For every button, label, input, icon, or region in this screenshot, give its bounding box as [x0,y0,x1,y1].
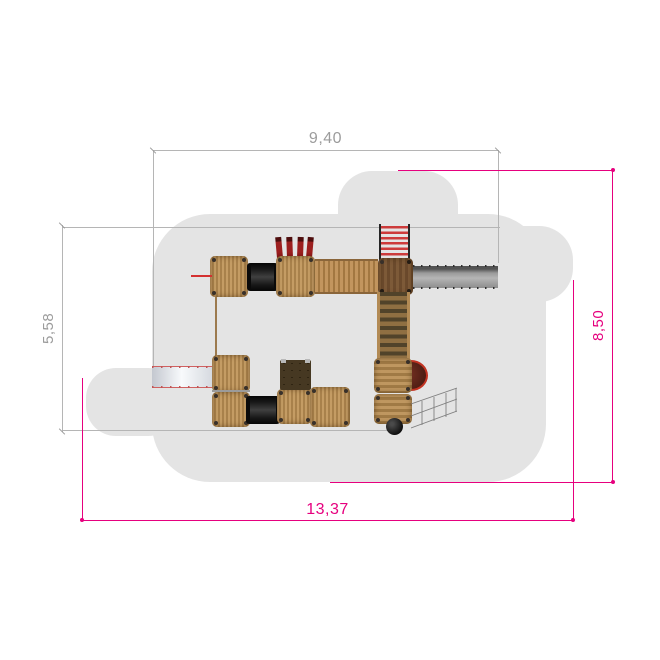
dim-right-line [612,170,613,482]
playground-plan-drawing: 9,40 5,58 8,50 13,37 [0,0,660,660]
platform-seam [212,390,250,392]
steel-slide [413,266,498,288]
dim-right-dot-top [611,168,615,172]
platform-bottom-middle [277,389,312,424]
dim-left-label: 5,58 [40,297,57,359]
dim-left-extension-bottom [62,430,400,431]
dim-right-label: 8,50 [590,294,607,356]
climbing-post-icon [286,237,293,258]
white-slide [152,366,218,388]
crawl-tunnel-bottom [246,396,280,424]
dim-top-extension-left [153,150,154,367]
stair-flight [377,292,410,360]
climbing-post-icon [297,237,304,258]
dim-right-dot-bottom [611,480,615,484]
platform-top-left [210,256,248,297]
dim-left-line [62,225,63,432]
ladder-rungs [381,226,408,261]
firemans-pole-icon [191,275,212,277]
platform-bottom-left-upper [212,355,250,392]
dim-bottom-extension-right [573,280,574,520]
crawl-tunnel-top [247,263,278,291]
dim-right-extension-top [398,170,613,171]
dim-left-extension-top [62,227,500,228]
dim-top-line [153,150,498,151]
platform-top-middle [276,256,315,297]
support-pole [215,297,217,357]
platform-tower [378,258,413,295]
activity-panel [280,360,311,390]
dim-bottom-label: 13,37 [82,501,573,519]
plank-bridge [315,259,378,294]
dim-top-extension-right [498,150,499,263]
climbing-net [411,384,457,430]
platform-lower-tower-upper [374,358,412,393]
dim-bottom-extension-left [82,378,83,520]
dim-bottom-line [82,520,573,521]
dim-right-extension-bottom [330,482,613,483]
safety-zone-right-lobe [462,226,573,302]
platform-bottom-left-lower [212,392,250,427]
dim-top-label: 9,40 [153,130,498,148]
balance-ball [386,418,403,435]
platform-bottom-right [310,387,350,427]
